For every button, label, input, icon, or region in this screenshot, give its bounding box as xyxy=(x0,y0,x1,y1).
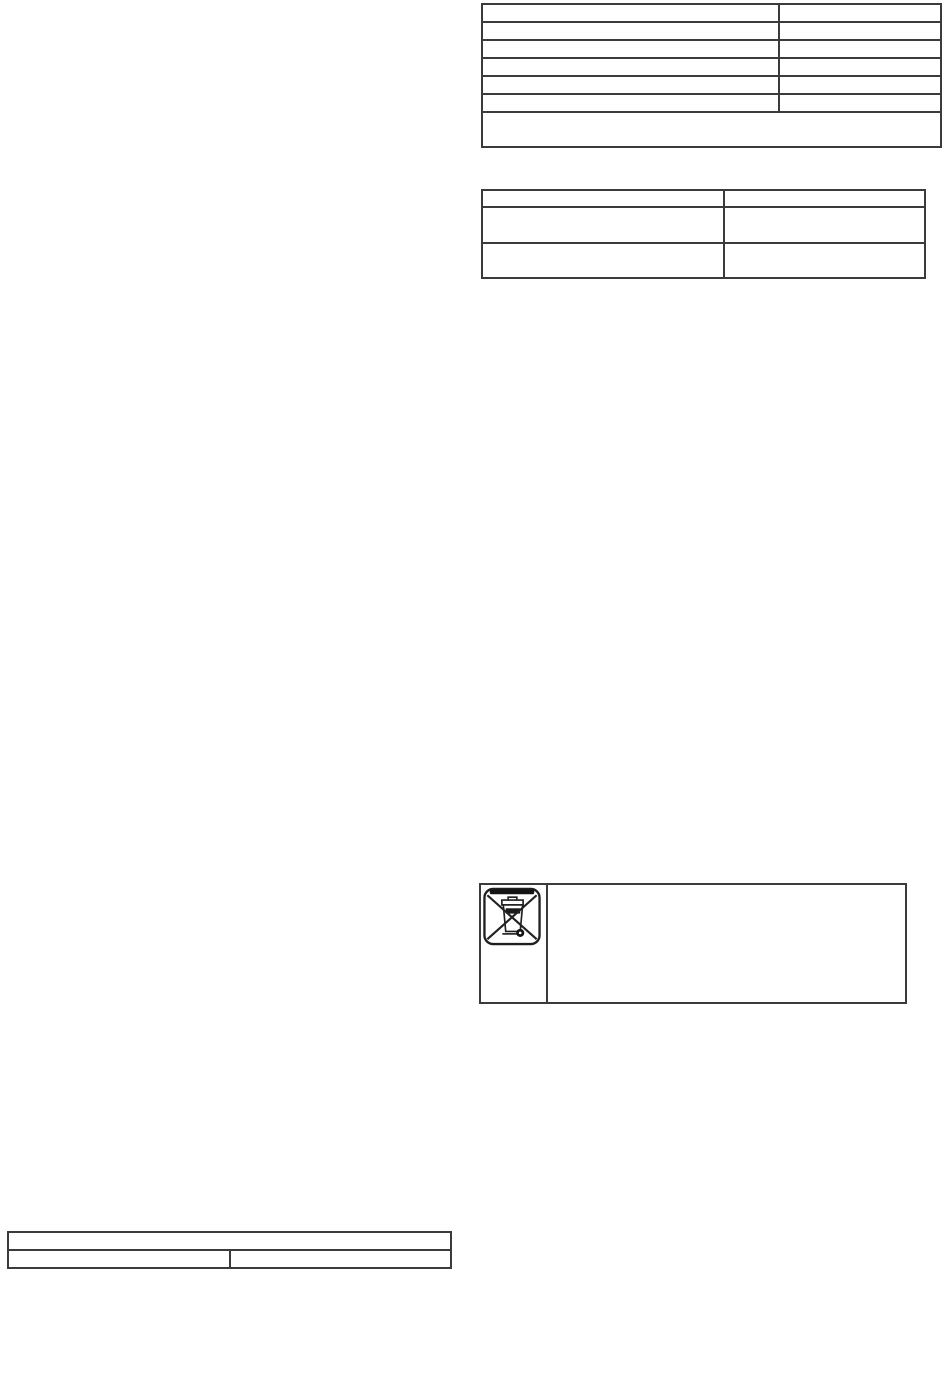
table-row xyxy=(482,243,925,278)
table-row xyxy=(482,40,941,58)
table-cell xyxy=(482,22,779,40)
table-row xyxy=(482,58,941,76)
table-cell xyxy=(779,22,941,40)
table-row xyxy=(482,22,941,40)
table-row xyxy=(482,4,941,22)
table-cell xyxy=(482,94,779,112)
table-row xyxy=(482,190,925,207)
document-page xyxy=(0,0,950,1374)
mid-right-table xyxy=(481,189,926,279)
table-cell xyxy=(482,40,779,58)
table-cell xyxy=(779,4,941,22)
table-cell xyxy=(724,243,925,278)
table-cell-merged xyxy=(8,1232,451,1250)
table-row xyxy=(482,94,941,112)
table-cell xyxy=(482,58,779,76)
table-cell xyxy=(779,94,941,112)
table-cell xyxy=(779,58,941,76)
weee-notice-box xyxy=(479,883,907,1004)
table-cell xyxy=(482,4,779,22)
top-right-table xyxy=(481,3,942,148)
table-row xyxy=(482,112,941,147)
table-row xyxy=(482,207,925,243)
table-cell-merged xyxy=(482,112,941,147)
table-row xyxy=(8,1232,451,1250)
table-row xyxy=(8,1250,451,1268)
table-cell xyxy=(8,1250,230,1268)
table-cell xyxy=(779,40,941,58)
table-cell xyxy=(482,207,724,243)
table-cell xyxy=(779,76,941,94)
weee-crossed-out-wheelie-bin-icon xyxy=(483,935,541,949)
table-cell xyxy=(482,76,779,94)
bottom-left-table xyxy=(7,1231,452,1269)
table-cell xyxy=(724,190,925,207)
weee-icon-cell xyxy=(481,885,548,1002)
table-cell xyxy=(724,207,925,243)
table-cell xyxy=(230,1250,452,1268)
table-row xyxy=(482,76,941,94)
table-cell xyxy=(482,243,724,278)
table-cell xyxy=(482,190,724,207)
weee-notice-text xyxy=(548,885,905,1002)
